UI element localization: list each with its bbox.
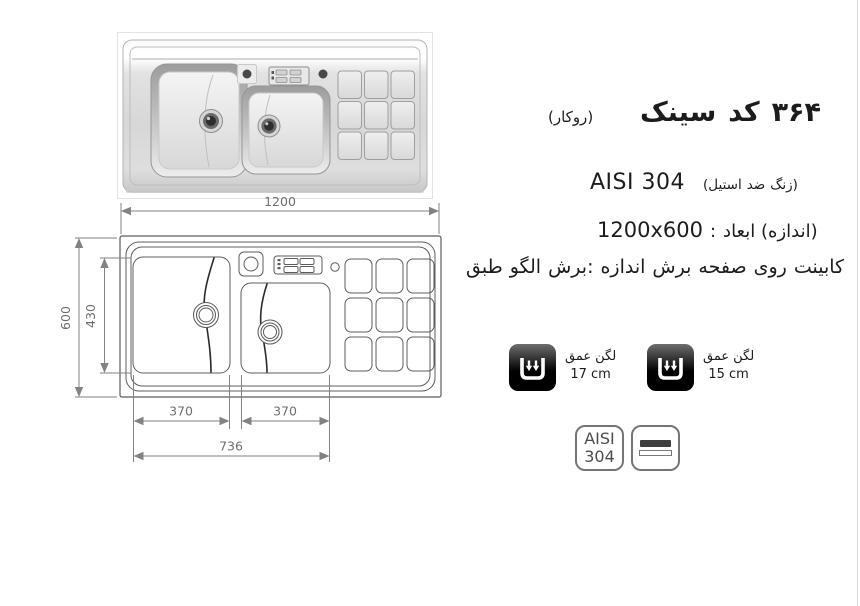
dim-label-370-left: 370 xyxy=(169,404,193,419)
material-grade: AISI 304 xyxy=(590,170,685,195)
dim-label-600: 600 xyxy=(60,306,73,330)
drawing-right-bowl xyxy=(241,283,330,373)
drawing-drainboard-grid xyxy=(345,259,434,371)
photo-drainboard-grid xyxy=(338,71,415,160)
dim-label-1200: 1200 xyxy=(264,195,296,209)
depth-value: 17 cm xyxy=(570,367,611,382)
depth-badge-15: عمقلگن 15 cm xyxy=(647,344,754,391)
size-colon: : xyxy=(710,221,716,242)
depth-badge-17: عمقلگن 17 cm xyxy=(509,344,616,391)
dim-bowl-height: 430 xyxy=(83,258,131,373)
material-note: (استیلضدزنگ) xyxy=(703,177,798,193)
depth-value: 15 cm xyxy=(708,367,749,382)
dim-overall-width: 1200 xyxy=(121,195,439,234)
size-label: ابعاد(اندازه) xyxy=(723,221,818,242)
aisi-304-badge: AISI 304 xyxy=(575,425,624,471)
depth-label: عمقلگن xyxy=(565,349,616,364)
cutting-note: طبقالگوبرش:اندازهبرشصفحهرویکابینت xyxy=(466,256,844,278)
mount-type-note: (روکار) xyxy=(548,108,593,126)
drawing-left-bowl xyxy=(133,257,230,373)
steel-sheet-icon xyxy=(631,425,680,471)
product-photo xyxy=(117,32,433,199)
bowl-depth-icon xyxy=(509,344,556,391)
sheet-thin-bar xyxy=(639,450,672,456)
page-title: سینککد۳۶۴ xyxy=(640,97,821,128)
bowl-depth-glyph xyxy=(654,351,687,384)
depth-label: عمقلگن xyxy=(703,349,754,364)
drawing-tap-hole xyxy=(239,252,263,276)
bowl-depth-glyph xyxy=(516,351,549,384)
photo-left-bowl xyxy=(151,64,247,177)
drawing-accessory-panel xyxy=(274,256,339,274)
dim-label-370-right: 370 xyxy=(273,404,297,419)
photo-right-bowl xyxy=(242,86,330,174)
size-line: 1200x600 : ابعاد(اندازه) xyxy=(597,218,818,242)
dim-label-736: 736 xyxy=(219,439,243,454)
technical-drawing: 1200 xyxy=(60,195,470,470)
sheet-thick-bar xyxy=(640,440,671,447)
size-value: 1200x600 xyxy=(597,218,703,242)
page-edge-line xyxy=(857,0,858,606)
sink-photo-svg xyxy=(118,33,432,198)
spec-sheet: 1200 xyxy=(0,0,860,606)
dim-bowl-widths: 370 370 736 xyxy=(134,375,330,462)
dim-label-430: 430 xyxy=(83,304,98,328)
bowl-depth-icon xyxy=(647,344,694,391)
